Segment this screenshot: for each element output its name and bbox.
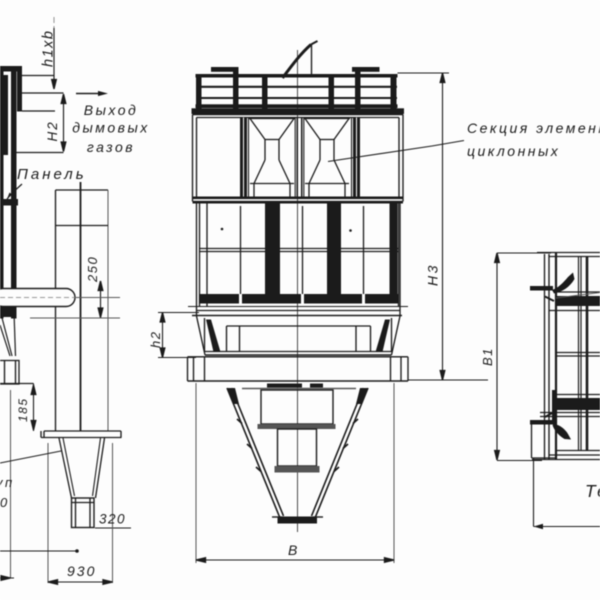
- svg-text:Секция элементов: Секция элементов: [467, 120, 600, 136]
- svg-text:В: В: [288, 542, 297, 558]
- svg-text:Н2: Н2: [45, 120, 60, 141]
- svg-text:h1xb: h1xb: [41, 30, 57, 67]
- svg-text:циклонных: циклонных: [467, 143, 560, 159]
- svg-text:Панель: Панель: [17, 166, 87, 183]
- svg-text:уп: уп: [0, 475, 15, 490]
- svg-text:0: 0: [0, 495, 10, 510]
- svg-text:В1: В1: [480, 347, 495, 366]
- svg-text:дымовых: дымовых: [72, 120, 150, 136]
- svg-text:h2: h2: [148, 331, 163, 348]
- svg-text:Н3: Н3: [425, 263, 441, 286]
- svg-text:газов: газов: [87, 139, 135, 155]
- svg-text:930: 930: [67, 563, 96, 579]
- svg-text:250: 250: [85, 256, 100, 283]
- svg-text:Течка: Течка: [585, 481, 600, 501]
- svg-text:185: 185: [16, 397, 30, 422]
- svg-text:320: 320: [99, 512, 126, 527]
- svg-text:Выход: Выход: [84, 102, 139, 118]
